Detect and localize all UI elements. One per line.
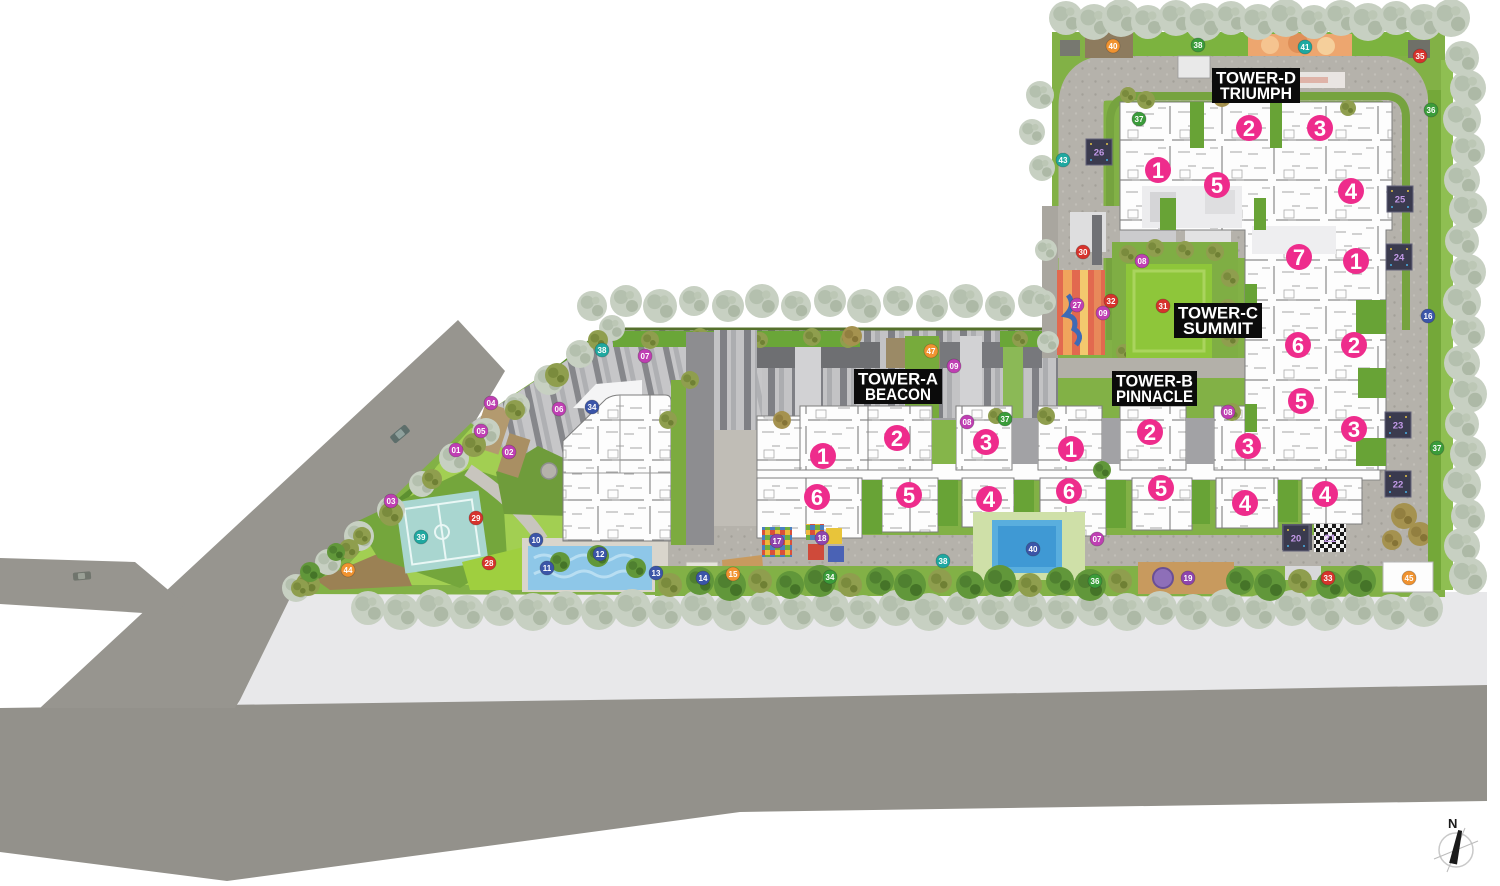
svg-text:2: 2 — [1243, 116, 1255, 141]
svg-text:33: 33 — [1324, 574, 1333, 583]
svg-text:37: 37 — [1001, 415, 1010, 424]
svg-text:09: 09 — [950, 362, 959, 371]
svg-text:32: 32 — [1107, 297, 1116, 306]
svg-text:30: 30 — [1079, 248, 1088, 257]
svg-text:45: 45 — [1405, 574, 1414, 583]
svg-text:4: 4 — [1239, 491, 1252, 516]
svg-text:47: 47 — [927, 347, 936, 356]
svg-text:29: 29 — [472, 514, 481, 523]
svg-text:20: 20 — [1291, 534, 1302, 545]
svg-text:1: 1 — [1152, 158, 1164, 183]
svg-text:23: 23 — [1393, 421, 1404, 432]
svg-text:6: 6 — [1063, 479, 1075, 504]
svg-text:07: 07 — [1093, 535, 1102, 544]
svg-text:3: 3 — [1242, 434, 1254, 459]
svg-text:7: 7 — [1293, 245, 1305, 270]
svg-text:14: 14 — [699, 574, 708, 583]
svg-text:43: 43 — [1059, 156, 1068, 165]
svg-text:06: 06 — [555, 405, 564, 414]
svg-text:5: 5 — [903, 483, 915, 508]
svg-text:37: 37 — [1135, 115, 1144, 124]
svg-text:08: 08 — [1138, 257, 1147, 266]
svg-text:38: 38 — [598, 346, 607, 355]
svg-text:02: 02 — [505, 448, 514, 457]
svg-text:6: 6 — [1292, 333, 1304, 358]
svg-text:16: 16 — [1424, 312, 1433, 321]
svg-text:17: 17 — [773, 537, 782, 546]
svg-text:6: 6 — [811, 485, 823, 510]
svg-text:22: 22 — [1393, 480, 1404, 491]
svg-text:5: 5 — [1295, 389, 1307, 414]
svg-text:08: 08 — [963, 418, 972, 427]
svg-text:10: 10 — [532, 536, 541, 545]
svg-text:01: 01 — [452, 446, 461, 455]
svg-text:SUMMIT: SUMMIT — [1183, 319, 1254, 338]
svg-text:5: 5 — [1155, 476, 1167, 501]
svg-text:3: 3 — [1314, 116, 1326, 141]
svg-text:34: 34 — [588, 403, 597, 412]
svg-text:34: 34 — [826, 573, 835, 582]
svg-text:07: 07 — [641, 352, 650, 361]
svg-text:38: 38 — [1194, 41, 1203, 50]
svg-text:2: 2 — [891, 426, 903, 451]
svg-text:BEACON: BEACON — [865, 385, 931, 404]
svg-text:27: 27 — [1073, 301, 1082, 310]
svg-text:24: 24 — [1394, 253, 1405, 264]
svg-text:04: 04 — [487, 399, 496, 408]
svg-text:15: 15 — [729, 570, 738, 579]
svg-text:40: 40 — [1029, 545, 1038, 554]
svg-text:1: 1 — [1065, 437, 1077, 462]
svg-text:36: 36 — [1427, 106, 1436, 115]
svg-text:35: 35 — [1416, 52, 1425, 61]
svg-text:38: 38 — [939, 557, 948, 566]
svg-text:40: 40 — [1109, 42, 1118, 51]
svg-text:08: 08 — [1224, 408, 1233, 417]
svg-text:2: 2 — [1144, 420, 1156, 445]
svg-text:4: 4 — [1319, 482, 1332, 507]
svg-text:11: 11 — [543, 564, 552, 573]
svg-text:1: 1 — [817, 444, 829, 469]
svg-text:03: 03 — [387, 497, 396, 506]
svg-text:4: 4 — [983, 487, 996, 512]
svg-text:31: 31 — [1159, 302, 1168, 311]
svg-text:44: 44 — [344, 566, 353, 575]
svg-text:4: 4 — [1345, 179, 1358, 204]
svg-text:2: 2 — [1348, 333, 1360, 358]
svg-text:N: N — [1448, 816, 1457, 831]
svg-text:37: 37 — [1433, 444, 1442, 453]
svg-text:36: 36 — [1091, 577, 1100, 586]
svg-text:39: 39 — [417, 533, 426, 542]
svg-text:1: 1 — [1350, 249, 1362, 274]
svg-text:28: 28 — [485, 559, 494, 568]
svg-text:19: 19 — [1184, 574, 1193, 583]
svg-text:TRIUMPH: TRIUMPH — [1220, 84, 1292, 103]
svg-text:09: 09 — [1099, 309, 1108, 318]
svg-text:25: 25 — [1395, 195, 1406, 206]
svg-text:05: 05 — [477, 427, 486, 436]
svg-text:41: 41 — [1301, 43, 1310, 52]
svg-text:26: 26 — [1094, 148, 1105, 159]
svg-text:PINNACLE: PINNACLE — [1116, 387, 1193, 406]
svg-text:18: 18 — [818, 534, 827, 543]
svg-text:3: 3 — [1348, 417, 1360, 442]
svg-text:21: 21 — [1324, 533, 1336, 545]
svg-text:12: 12 — [596, 550, 605, 559]
svg-text:5: 5 — [1211, 173, 1223, 198]
svg-text:13: 13 — [652, 569, 661, 578]
svg-text:3: 3 — [980, 430, 992, 455]
